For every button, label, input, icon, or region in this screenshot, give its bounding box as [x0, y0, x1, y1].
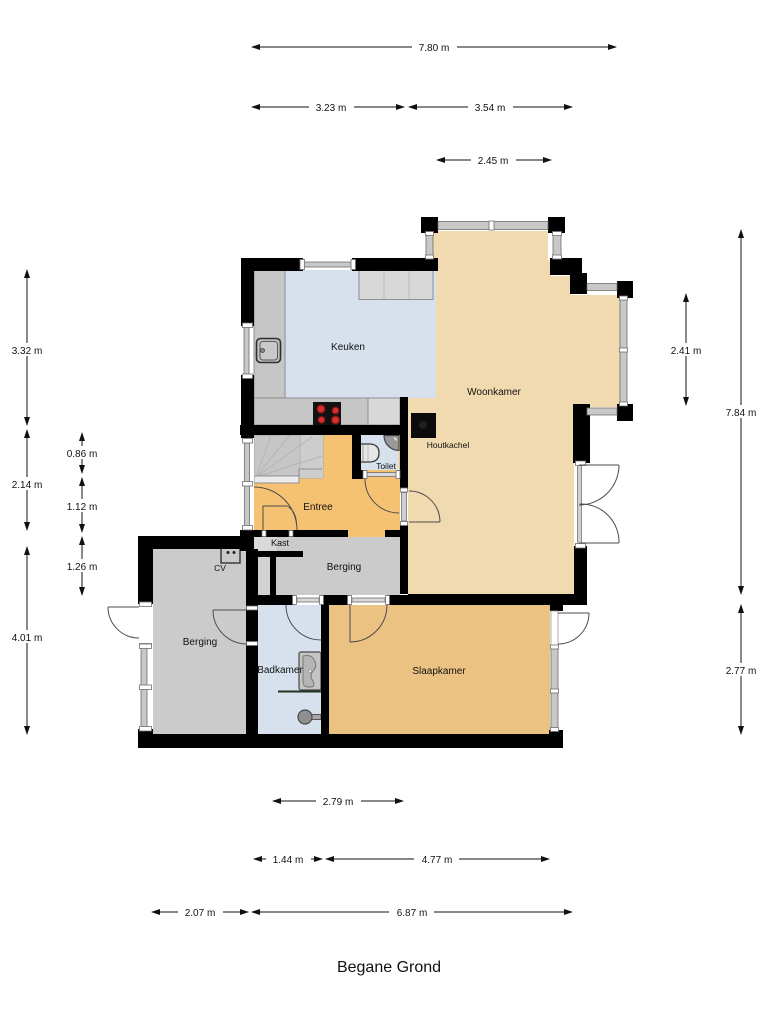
- svg-text:Toilet: Toilet: [376, 461, 396, 471]
- svg-text:1.12 m: 1.12 m: [67, 502, 98, 513]
- svg-text:Berging: Berging: [183, 637, 217, 648]
- svg-text:2.07 m: 2.07 m: [185, 908, 216, 919]
- svg-text:Berging: Berging: [327, 562, 361, 573]
- svg-text:Slaapkamer: Slaapkamer: [412, 666, 466, 677]
- svg-text:2.77 m: 2.77 m: [726, 666, 757, 677]
- svg-text:3.54 m: 3.54 m: [475, 103, 506, 114]
- svg-text:3.32 m: 3.32 m: [12, 346, 43, 357]
- svg-text:4.77 m: 4.77 m: [422, 855, 453, 866]
- svg-text:6.87 m: 6.87 m: [397, 908, 428, 919]
- svg-text:Badkamer: Badkamer: [257, 665, 303, 676]
- svg-text:7.84 m: 7.84 m: [726, 408, 757, 419]
- svg-text:Kast: Kast: [271, 538, 290, 548]
- svg-text:7.80 m: 7.80 m: [419, 43, 450, 54]
- svg-text:CV: CV: [214, 563, 226, 573]
- svg-text:0.86 m: 0.86 m: [67, 449, 98, 460]
- svg-text:2.14 m: 2.14 m: [12, 480, 43, 491]
- svg-text:2.79 m: 2.79 m: [323, 797, 354, 808]
- svg-text:2.41 m: 2.41 m: [671, 346, 702, 357]
- svg-text:3.23 m: 3.23 m: [316, 103, 347, 114]
- svg-text:Woonkamer: Woonkamer: [467, 387, 521, 398]
- svg-text:Houtkachel: Houtkachel: [427, 440, 470, 450]
- svg-text:2.45 m: 2.45 m: [478, 156, 509, 167]
- svg-text:1.44 m: 1.44 m: [273, 855, 304, 866]
- svg-text:Entree: Entree: [303, 502, 333, 513]
- svg-text:1.26 m: 1.26 m: [67, 562, 98, 573]
- svg-text:Keuken: Keuken: [331, 342, 365, 353]
- svg-text:4.01 m: 4.01 m: [12, 633, 43, 644]
- svg-text:Begane Grond: Begane Grond: [337, 959, 441, 976]
